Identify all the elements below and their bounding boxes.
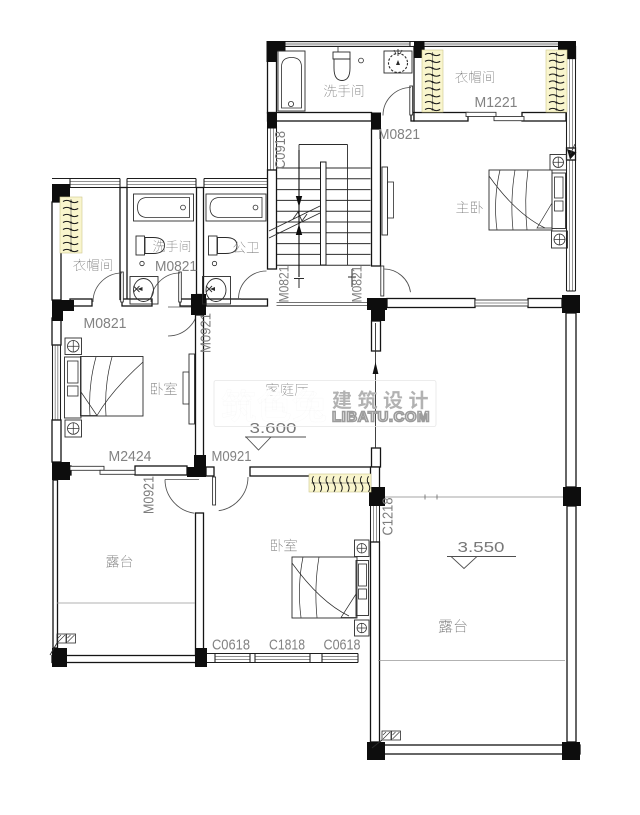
svg-text:M0821: M0821 [276, 265, 292, 302]
svg-text:3.550: 3.550 [458, 539, 505, 556]
svg-text:M0921: M0921 [198, 313, 215, 353]
svg-text:M0821: M0821 [155, 258, 197, 275]
svg-text:M0921: M0921 [141, 476, 158, 514]
svg-text:C0918: C0918 [272, 131, 289, 169]
svg-text:C0618: C0618 [212, 637, 250, 654]
svg-text:C0618: C0618 [324, 637, 361, 654]
svg-text:LIBATU.COM: LIBATU.COM [332, 409, 430, 426]
svg-text:C1218: C1218 [380, 498, 397, 536]
svg-text:M0821: M0821 [84, 315, 127, 332]
svg-text:M0921: M0921 [212, 448, 252, 465]
svg-text:3.600: 3.600 [250, 420, 297, 437]
svg-text:C1818: C1818 [269, 637, 305, 654]
svg-text:M0821: M0821 [378, 126, 420, 143]
svg-text:M0821: M0821 [349, 265, 365, 302]
svg-text:M2424: M2424 [109, 448, 152, 465]
svg-text:M1221: M1221 [475, 94, 518, 111]
